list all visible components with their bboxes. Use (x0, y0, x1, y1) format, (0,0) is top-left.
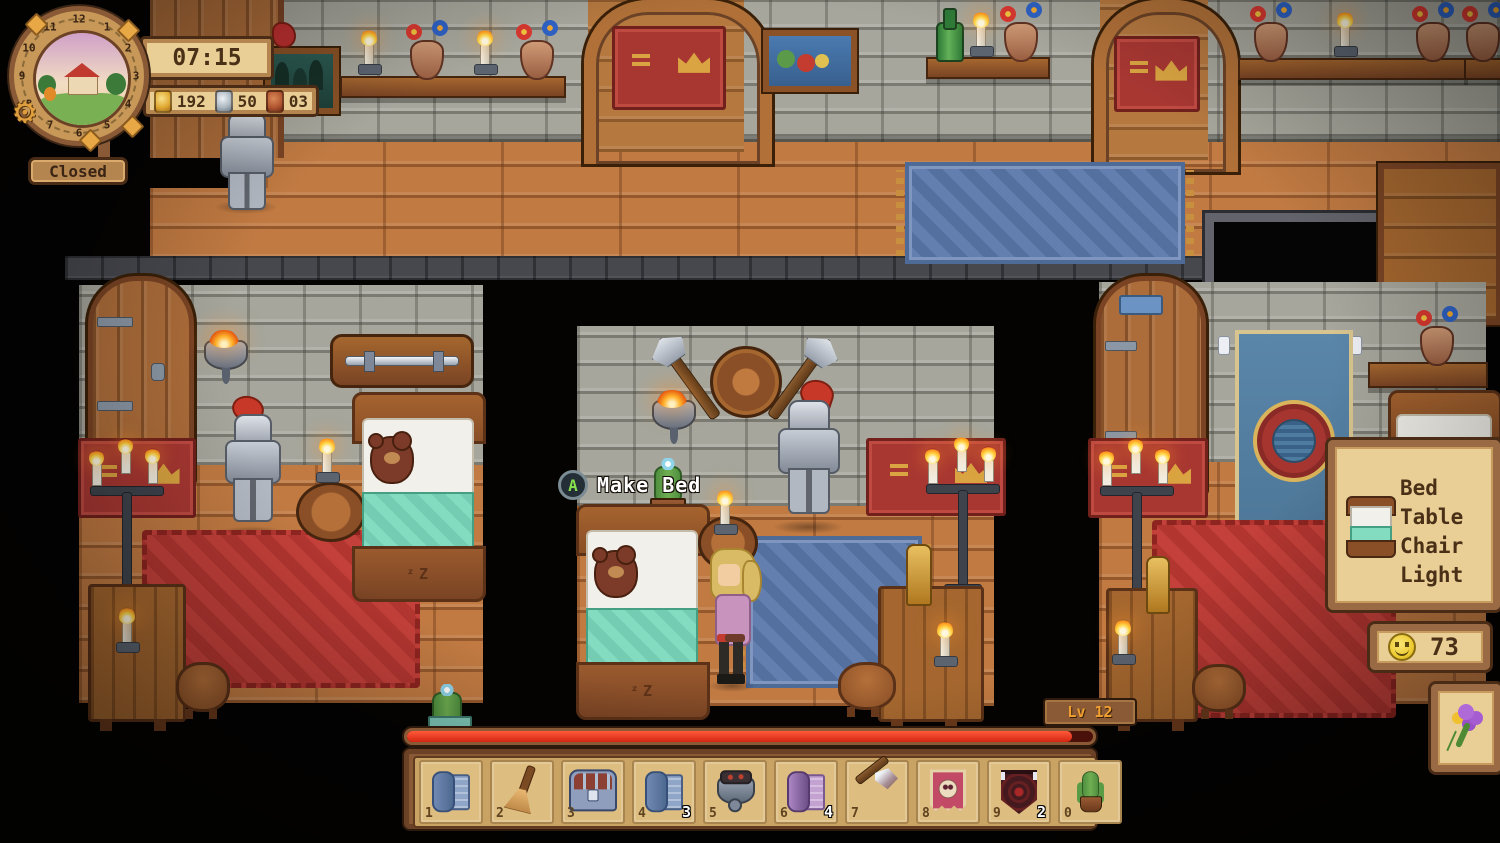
blueprint-roll-purple-icon (784, 768, 828, 812)
doorway-banner-right (1114, 36, 1200, 112)
player-face (718, 564, 740, 586)
armor-statue (214, 396, 290, 538)
slot-key: 2 (496, 806, 504, 821)
happiness-value: 73 (1430, 633, 1459, 661)
blueprint-roll-blue-icon (429, 768, 473, 812)
wall-brazier (652, 400, 696, 430)
painting-fruit (777, 50, 795, 68)
game-screen: ᶻZ ᶻZ (0, 0, 1500, 843)
door-hinge (97, 317, 133, 327)
slot-count: 3 (682, 803, 691, 821)
time-display: 07:15 (140, 36, 274, 80)
clock-number: 10 (22, 42, 35, 55)
broom-icon (500, 768, 544, 812)
candelabra-candle (1131, 452, 1141, 474)
flower-icon (1446, 702, 1486, 754)
candle (364, 44, 374, 70)
slot-key: 8 (922, 806, 930, 821)
candle (122, 622, 132, 648)
copper-coin-icon (266, 90, 284, 113)
happiness-counter: 73 (1367, 621, 1493, 673)
candelabra-pole (958, 490, 968, 586)
slot-count: 4 (824, 803, 833, 821)
candle (1118, 634, 1128, 660)
candelabra-candle (1102, 464, 1112, 486)
door-hinge (97, 401, 133, 411)
hotbar: 1 2 3 4 3 5 (402, 747, 1098, 831)
candle (1340, 26, 1350, 52)
sword-display (330, 334, 474, 388)
painting-bow (272, 22, 296, 48)
status-sign[interactable]: Closed (28, 157, 128, 185)
slot-key: 3 (567, 806, 575, 821)
fruit-painting (763, 30, 857, 92)
candle (940, 636, 950, 662)
hotbar-slot-8[interactable]: 8 (916, 760, 980, 824)
banner-pink-icon (930, 769, 966, 811)
candelabra-candle (928, 462, 938, 484)
clock-number: 5 (104, 119, 111, 132)
hotbar-slot-5[interactable]: 5 (703, 760, 767, 824)
doorway-banner-center (612, 26, 726, 110)
gamepad-a-button: A (558, 470, 588, 500)
amber-candelabrum (1146, 556, 1170, 614)
hotbar-slot-4[interactable]: 4 3 (632, 760, 696, 824)
blue-rug (905, 162, 1185, 264)
bed[interactable]: ᶻZ (576, 504, 704, 720)
build-panel: Bed Table Chair Light (1325, 437, 1500, 613)
candelabra-candle (148, 462, 158, 484)
bed-icon (1346, 496, 1392, 558)
armor-legs (233, 478, 273, 522)
candelabra-candle (984, 460, 994, 482)
slot-key: 5 (709, 806, 717, 821)
copper-amount: 03 (289, 92, 308, 111)
slot-key: 0 (1064, 806, 1072, 821)
decorate-button[interactable] (1428, 681, 1500, 775)
bed-icon-foot (1346, 540, 1396, 558)
clock-number: 4 (125, 98, 132, 111)
teddy-bear (370, 436, 414, 484)
storage-chest-icon (569, 769, 617, 811)
gear-icon[interactable]: ⚙ (14, 94, 36, 130)
build-item: Table (1400, 503, 1490, 532)
banner-peg (1218, 336, 1230, 355)
player-boots (717, 674, 745, 684)
player-legs (719, 642, 743, 676)
hotbar-slot-6[interactable]: 6 4 (774, 760, 838, 824)
xp-bar-track (407, 731, 1093, 742)
hotbar-slot-3[interactable]: 3 (561, 760, 625, 824)
clock-number: 12 (72, 13, 85, 26)
level-label: Lv 12 (1067, 703, 1112, 721)
side-table (88, 584, 186, 722)
smiley-icon (1388, 633, 1416, 661)
status-label: Closed (49, 162, 107, 181)
armor-shadow (772, 520, 844, 534)
hotbar-slot-2[interactable]: 2 (490, 760, 554, 824)
hotbar-slot-9[interactable]: 9 2 (987, 760, 1051, 824)
candelabra-pole (1132, 492, 1142, 598)
player-belt (717, 634, 745, 642)
hand-axe-icon (855, 768, 899, 812)
slot-key: 6 (780, 806, 788, 821)
cauldron-knob (728, 798, 742, 812)
time-value: 07:15 (172, 45, 241, 71)
gamepad-a-label: A (568, 476, 578, 495)
door-hinge (1105, 341, 1137, 351)
slot-key: 1 (425, 806, 433, 821)
stool (838, 662, 896, 710)
xp-bar-fill (407, 731, 1072, 742)
wall-shelf (1368, 362, 1488, 388)
candle (976, 26, 986, 52)
green-bottle (936, 22, 964, 62)
bed-footboard: ᶻZ (352, 546, 486, 602)
candelabra-pole (122, 492, 132, 598)
silver-coin-icon (215, 90, 233, 113)
player-character (704, 546, 760, 692)
wall-brazier (204, 340, 248, 370)
clock-tree (106, 73, 126, 95)
clock-number: 1 (104, 21, 111, 34)
clock-house (68, 75, 98, 95)
build-item: Light (1400, 561, 1490, 590)
hotbar-slot-7[interactable]: 7 (845, 760, 909, 824)
armor-statue (212, 112, 280, 210)
currency-bar: 192 50 03 (143, 85, 319, 117)
banner-emblem (1253, 400, 1335, 482)
gold-coin-icon (154, 90, 172, 113)
door-window (1119, 295, 1163, 315)
candle (720, 504, 730, 530)
bed[interactable]: ᶻZ (352, 392, 480, 602)
candelabra-candle (121, 452, 131, 474)
amber-candelabrum (906, 544, 932, 606)
banner-dark-icon (1001, 770, 1037, 814)
build-item-list: Bed Table Chair Light (1400, 474, 1490, 590)
silver-amount: 50 (238, 92, 257, 111)
hotbar-slot-1[interactable]: 1 (419, 760, 483, 824)
build-item: Chair (1400, 532, 1490, 561)
blueprint-roll-blue-icon (642, 768, 686, 812)
xp-bar (402, 726, 1098, 747)
clock-number: 7 (47, 119, 54, 132)
cauldron-icon (713, 768, 757, 812)
clock-number: 9 (19, 70, 26, 83)
slot-key: 9 (993, 806, 1001, 821)
candelabra-candle (92, 464, 102, 486)
clock-widget: 12 1 2 3 4 5 6 7 8 9 10 11 ⚙ (6, 2, 156, 152)
clock-orange-tree (44, 87, 56, 101)
door-handle (151, 363, 165, 381)
clock-number: 3 (133, 70, 140, 83)
build-item: Bed (1400, 474, 1490, 503)
gold-amount: 192 (177, 92, 206, 111)
stool (176, 662, 230, 712)
armor-legs (228, 172, 266, 210)
interaction-prompt: A Make Bed (558, 468, 758, 502)
bed-footboard: ᶻZ (576, 662, 710, 720)
sword-icon (345, 356, 459, 366)
candelabra-candle (957, 450, 967, 472)
candelabra-candle (1158, 462, 1168, 484)
armor-statue (766, 380, 850, 532)
candle (480, 44, 490, 70)
stool (1192, 664, 1246, 712)
clock-scene (33, 30, 131, 128)
teddy-bear (594, 550, 638, 598)
interaction-label: Make Bed (597, 473, 701, 497)
slot-key: 7 (851, 806, 859, 821)
slot-count: 2 (1037, 803, 1046, 821)
slot-key: 4 (638, 806, 646, 821)
armor-legs (788, 468, 830, 514)
level-badge: Lv 12 (1043, 698, 1137, 726)
candle (322, 452, 332, 478)
potted-cactus-icon (1068, 768, 1112, 812)
hotbar-slot-0[interactable]: 0 (1058, 760, 1122, 824)
side-table (878, 586, 984, 722)
hotbar-tray: 1 2 3 4 3 5 (413, 756, 1097, 828)
clock-number: 2 (125, 42, 132, 55)
